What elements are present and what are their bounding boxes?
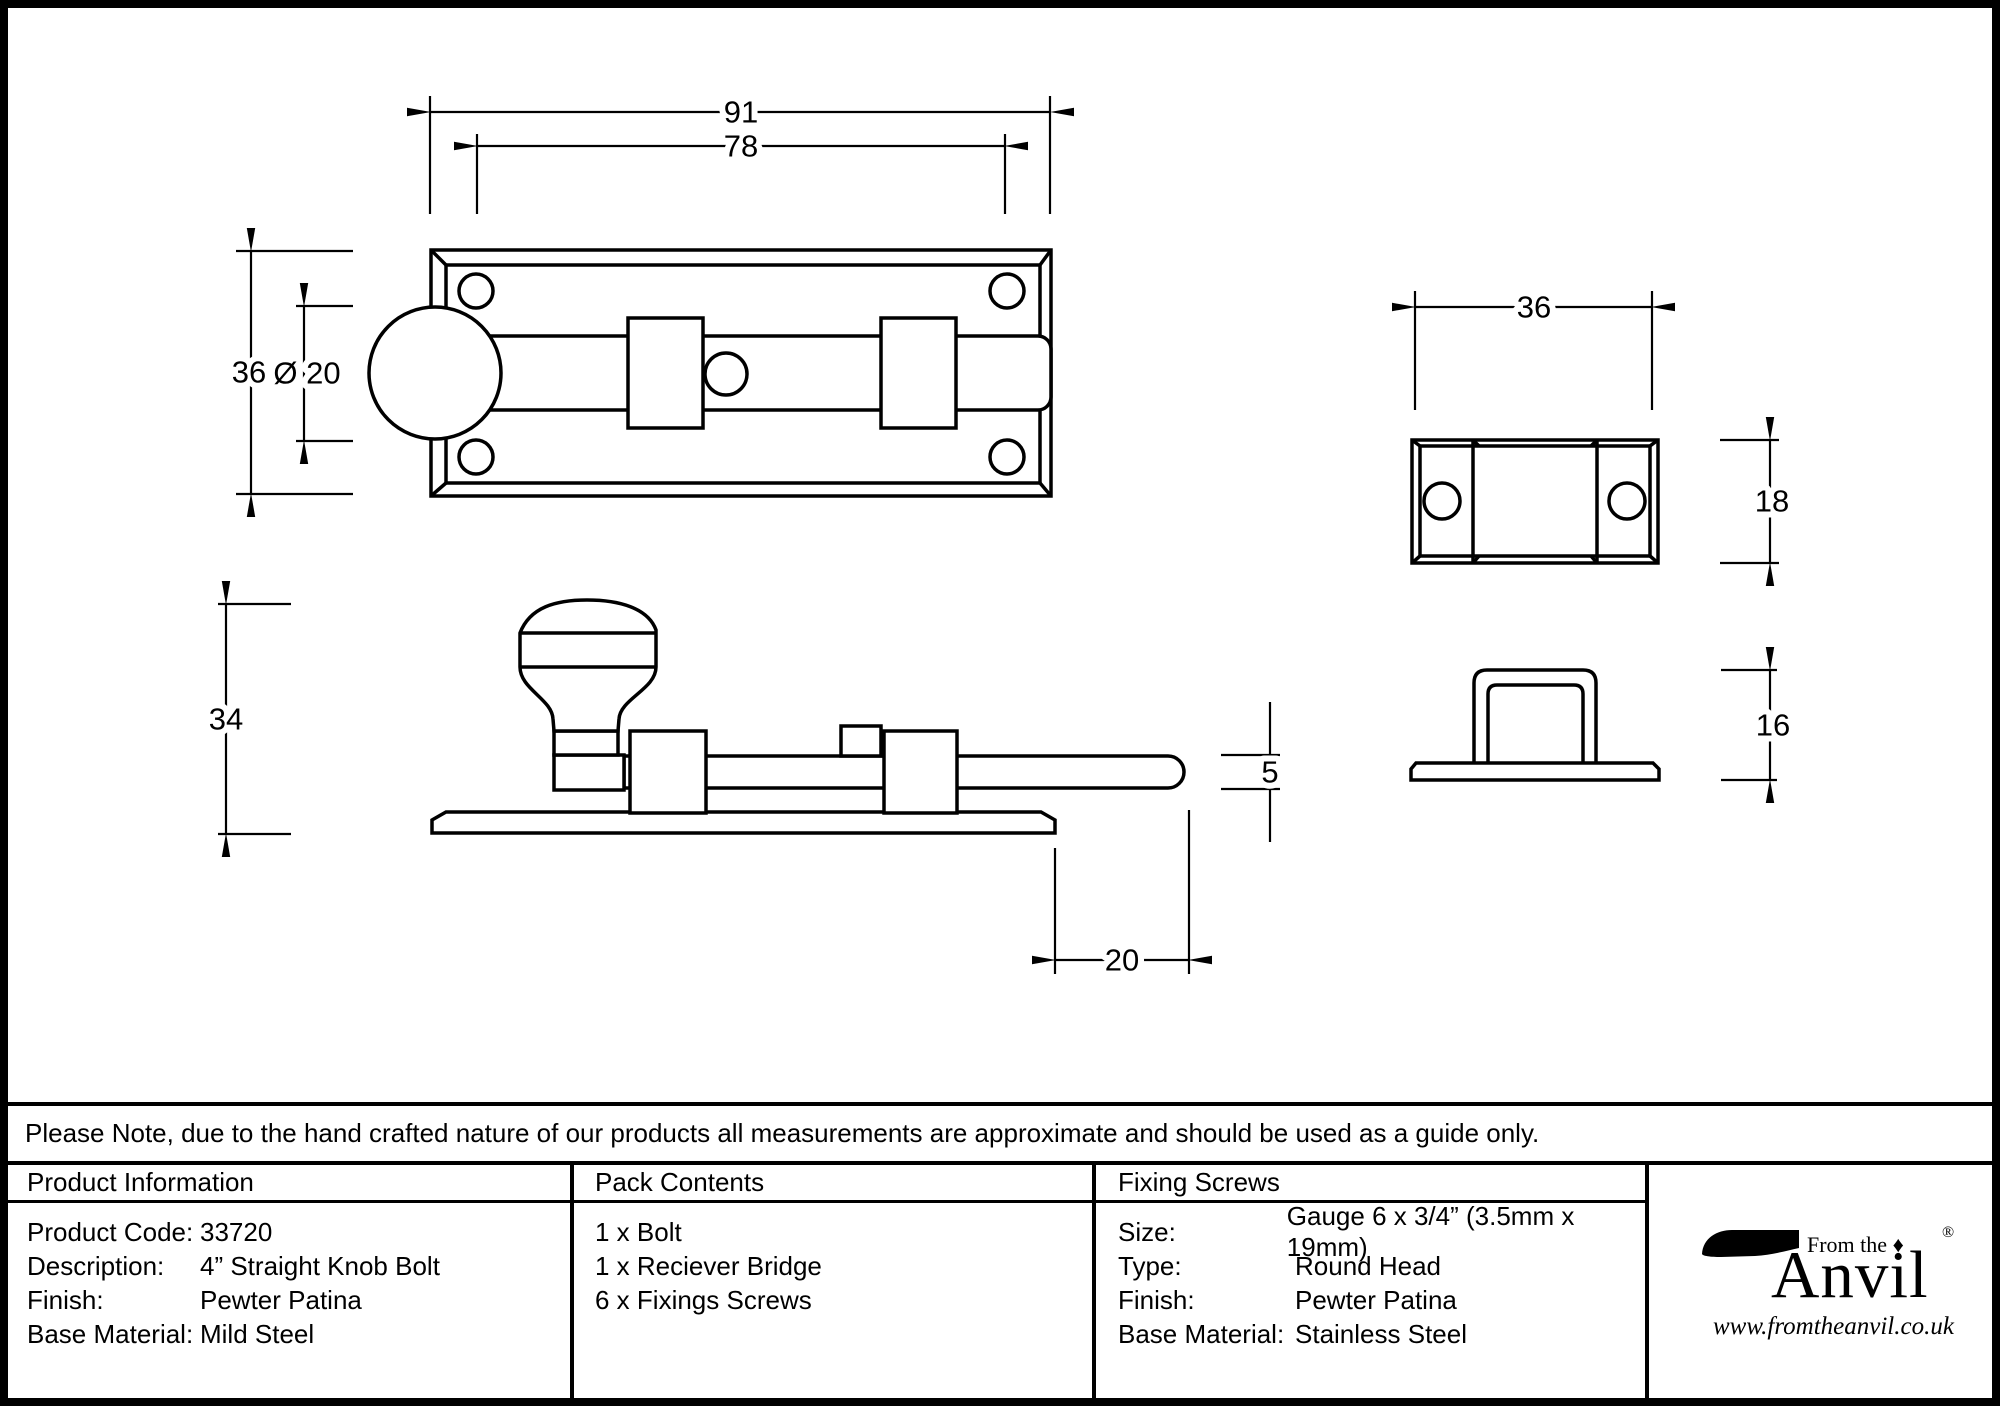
side-stop-lug: [841, 726, 881, 756]
product-information-header: Product Information: [8, 1165, 570, 1203]
dim-bridge-height: 18: [1755, 484, 1789, 519]
front-guide-right: [881, 318, 956, 428]
row-label: Type:: [1118, 1251, 1295, 1282]
front-guide-left: [628, 318, 703, 428]
product-info-table: Product Information Product Code: 33720 …: [8, 1165, 1992, 1398]
row-value: 33720: [200, 1217, 272, 1248]
table-row: Size: Gauge 6 x 3/4” (3.5mm x 19mm): [1096, 1215, 1645, 1249]
pack-contents-header: Pack Contents: [574, 1165, 1092, 1203]
row-value: Stainless Steel: [1295, 1319, 1467, 1350]
brand-column: From the ♦ ® Anvil www.fromtheanvil.co.u…: [1649, 1165, 1992, 1398]
row-value: Mild Steel: [200, 1319, 314, 1350]
dim-overall-height: 34: [209, 702, 243, 737]
row-value: Round Head: [1295, 1251, 1441, 1282]
measurement-note: Please Note, due to the hand crafted nat…: [8, 1102, 1992, 1165]
screw-hole: [1609, 483, 1645, 519]
front-knob: [369, 307, 501, 439]
note-text: Please Note, due to the hand crafted nat…: [25, 1118, 1539, 1149]
screw-hole: [1424, 483, 1460, 519]
list-item: 6 x Fixings Screws: [574, 1283, 1092, 1317]
screw-hole: [990, 440, 1024, 474]
bridge-loop-inner: [1488, 685, 1583, 763]
side-knob-shank: [554, 755, 624, 790]
front-bolt-bar: [468, 336, 1051, 410]
dim-hole-spacing: 78: [724, 129, 758, 164]
bridge-side-plate: [1411, 763, 1659, 780]
table-row: Finish: Pewter Patina: [8, 1283, 570, 1317]
list-item: 1 x Reciever Bridge: [574, 1249, 1092, 1283]
pack-contents-column: Pack Contents 1 x Bolt 1 x Reciever Brid…: [574, 1165, 1096, 1398]
row-label: Product Code:: [27, 1217, 200, 1248]
row-label: Size:: [1118, 1217, 1287, 1248]
row-label: Base Material:: [27, 1319, 200, 1350]
front-bolt-pin: [705, 353, 747, 395]
side-knob-collar: [554, 731, 618, 755]
screw-hole: [459, 440, 493, 474]
table-row: Base Material: Mild Steel: [8, 1317, 570, 1351]
side-guide-right: [884, 731, 957, 813]
row-label: Description:: [27, 1251, 200, 1282]
logo-wordmark: Anvil: [1771, 1242, 1929, 1309]
side-base-plate: [432, 812, 1055, 833]
table-row: Description: 4” Straight Knob Bolt: [8, 1249, 570, 1283]
list-item: 1 x Bolt: [574, 1215, 1092, 1249]
table-row: Base Material: Stainless Steel: [1096, 1317, 1645, 1351]
dim-bolt-throw: 20: [1105, 943, 1139, 978]
receiver-bridge-front-view: [1412, 440, 1658, 563]
from-the-anvil-logo: From the ♦ ® Anvil www.fromtheanvil.co.u…: [1695, 1222, 1965, 1342]
dim-overall-width: 91: [724, 95, 758, 130]
screw-hole: [990, 274, 1024, 308]
row-label: Base Material:: [1118, 1319, 1295, 1350]
fixing-screws-column: Fixing Screws Size: Gauge 6 x 3/4” (3.5m…: [1096, 1165, 1649, 1398]
dim-bolt-thickness: 5: [1261, 755, 1278, 790]
dim-bridge-side-height: 16: [1756, 708, 1790, 743]
table-row: Product Code: 33720: [8, 1215, 570, 1249]
bolt-side-view: [432, 600, 1184, 833]
receiver-bridge-side-view: [1411, 670, 1659, 780]
row-label: Finish:: [27, 1285, 200, 1316]
dim-knob-diameter: Ø 20: [273, 356, 340, 391]
technical-drawing: 91 78 36 Ø 20: [8, 8, 2000, 1102]
product-drawing-sheet: 91 78 36 Ø 20: [0, 0, 2000, 1406]
row-value: Pewter Patina: [1295, 1285, 1457, 1316]
fixing-screws-header: Fixing Screws: [1096, 1165, 1645, 1203]
row-label: Finish:: [1118, 1285, 1295, 1316]
bolt-front-view: [369, 250, 1051, 496]
side-guide-left: [630, 731, 706, 813]
logo-url: www.fromtheanvil.co.uk: [1713, 1313, 1953, 1341]
table-row: Finish: Pewter Patina: [1096, 1283, 1645, 1317]
screw-hole: [459, 274, 493, 308]
product-information-column: Product Information Product Code: 33720 …: [8, 1165, 574, 1398]
row-value: 4” Straight Knob Bolt: [200, 1251, 440, 1282]
dim-plate-height: 36: [232, 355, 266, 390]
registered-mark: ®: [1942, 1224, 1954, 1242]
dim-bridge-width: 36: [1517, 290, 1551, 325]
row-value: Pewter Patina: [200, 1285, 362, 1316]
